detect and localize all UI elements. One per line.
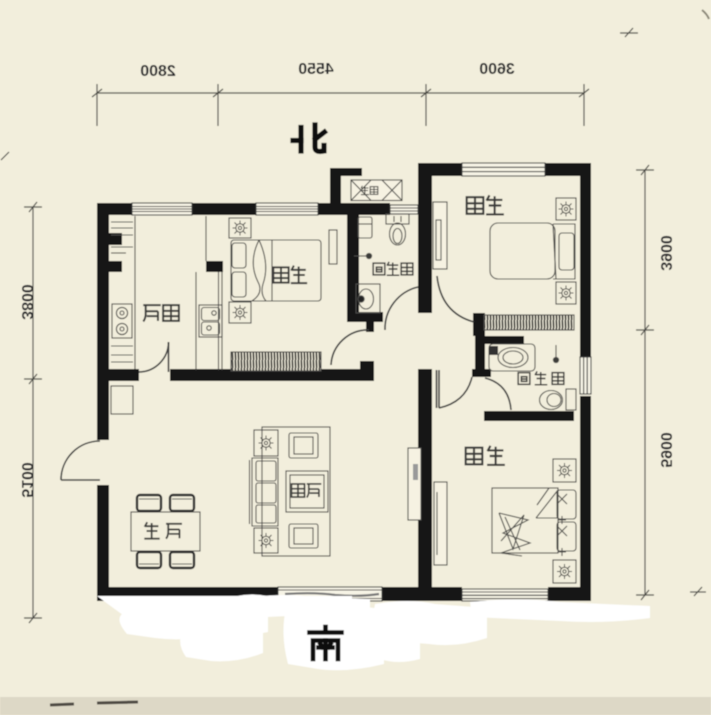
svg-text:2800: 2800 <box>140 63 176 80</box>
svg-text:3800: 3800 <box>18 284 35 320</box>
svg-text:3600: 3600 <box>479 61 515 78</box>
svg-text:3900: 3900 <box>657 235 674 271</box>
svg-text:5900: 5900 <box>657 432 674 468</box>
svg-text:5100: 5100 <box>18 462 35 498</box>
svg-text:4550: 4550 <box>298 61 334 78</box>
